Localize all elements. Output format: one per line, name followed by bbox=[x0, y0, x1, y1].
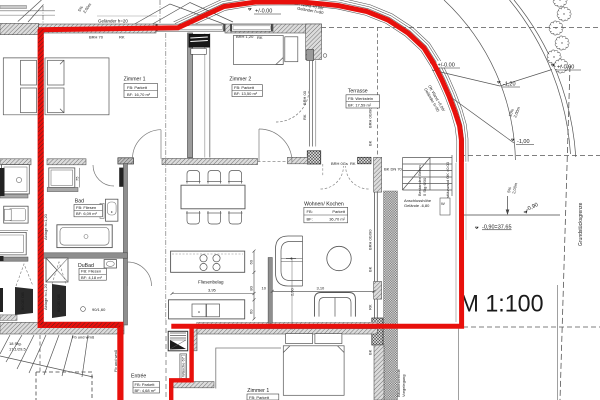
svg-text:Fb und wmß: Fb und wmß bbox=[113, 349, 118, 372]
svg-text:90 0G OB: 90 0G OB bbox=[20, 292, 25, 310]
svg-text:Entrée: Entrée bbox=[131, 374, 146, 380]
svg-text:W: W bbox=[441, 201, 445, 206]
svg-text:BF:: BF: bbox=[307, 217, 313, 222]
svg-text:60: 60 bbox=[249, 309, 254, 314]
svg-text:Fb und wmß: Fb und wmß bbox=[72, 335, 95, 340]
svg-text:RK: RK bbox=[368, 304, 373, 310]
svg-text:Wäsche 67: Wäsche 67 bbox=[181, 356, 186, 377]
svg-text:75: 75 bbox=[75, 176, 80, 181]
svg-text:60: 60 bbox=[249, 259, 254, 264]
svg-text:Gelände -6,80: Gelände -6,80 bbox=[404, 203, 430, 208]
svg-text:36,70 m²: 36,70 m² bbox=[329, 217, 345, 222]
svg-text:17,1/29,5: 17,1/29,5 bbox=[9, 347, 26, 352]
svg-text:+/-0.00: +/-0.00 bbox=[438, 63, 455, 69]
svg-text:FB: Parkett: FB: Parkett bbox=[249, 395, 270, 400]
svg-text:BK: BK bbox=[368, 349, 373, 355]
svg-text:RK: RK bbox=[119, 35, 125, 40]
svg-text:3,10: 3,10 bbox=[317, 285, 326, 290]
svg-text:Zimmer 1: Zimmer 1 bbox=[247, 388, 269, 394]
svg-text:-1,20: -1,20 bbox=[503, 82, 516, 88]
svg-text:90/1,60: 90/1,60 bbox=[92, 307, 106, 312]
svg-text:BF: 4,68 m²: BF: 4,68 m² bbox=[135, 388, 157, 393]
svg-text:FB: Parkett: FB: Parkett bbox=[135, 382, 156, 387]
svg-text:FB: Parkett: FB: Parkett bbox=[127, 85, 148, 90]
svg-text:BRH 0G/90: BRH 0G/90 bbox=[368, 229, 373, 250]
svg-text:+/-0.00: +/-0.00 bbox=[255, 9, 272, 15]
svg-text:BK DN 70: BK DN 70 bbox=[384, 167, 403, 172]
svg-text:BF: 17,59 m²: BF: 17,59 m² bbox=[348, 102, 372, 107]
svg-text:-1,00: -1,00 bbox=[517, 139, 530, 145]
svg-text:18 Stg.: 18 Stg. bbox=[9, 341, 22, 346]
svg-text:BRH 70: BRH 70 bbox=[89, 35, 104, 40]
svg-text:90 0G OB: 90 0G OB bbox=[56, 294, 61, 312]
svg-text:Vorgelegung: Vorgelegung bbox=[401, 375, 406, 397]
svg-text:5 Stg 6/30: 5 Stg 6/30 bbox=[422, 177, 427, 196]
svg-text:BRH 00: BRH 00 bbox=[302, 90, 307, 105]
svg-text:BRH 0Gs: BRH 0Gs bbox=[331, 161, 348, 166]
svg-text:FB: Parkett: FB: Parkett bbox=[234, 85, 255, 90]
svg-text:FB:: FB: bbox=[307, 209, 313, 214]
svg-text:10: 10 bbox=[262, 285, 267, 290]
svg-text:BF: 6,09 m²: BF: 6,09 m² bbox=[76, 211, 98, 216]
svg-text:BF: 16,70 m²: BF: 16,70 m² bbox=[127, 92, 151, 97]
svg-text:BRH 1,20: BRH 1,20 bbox=[236, 34, 254, 39]
svg-text:Geländer h=20: Geländer h=20 bbox=[98, 19, 128, 24]
svg-text:Parkett: Parkett bbox=[332, 209, 346, 214]
svg-text:BRH 0G/90: BRH 0G/90 bbox=[368, 107, 373, 128]
svg-text:BK: BK bbox=[368, 266, 373, 272]
svg-text:RK: RK bbox=[302, 114, 307, 120]
svg-text:+/-0.00: +/-0.00 bbox=[557, 65, 574, 71]
svg-text:M 1:100: M 1:100 bbox=[460, 291, 544, 318]
svg-text:Wohnen/ Kochen: Wohnen/ Kochen bbox=[304, 201, 344, 207]
svg-text:BF: 4,18 m²: BF: 4,18 m² bbox=[81, 275, 103, 280]
svg-text:Bad: Bad bbox=[75, 199, 84, 205]
svg-text:FB: Fliesen: FB: Fliesen bbox=[76, 205, 96, 210]
svg-text:BF: 13,50 m²: BF: 13,50 m² bbox=[234, 91, 258, 96]
svg-text:FB: Fliesen: FB: Fliesen bbox=[81, 269, 101, 274]
svg-text:Fliesenbelag: Fliesenbelag bbox=[198, 280, 224, 285]
svg-text:BK: BK bbox=[368, 140, 373, 146]
svg-text:Terrasse: Terrasse bbox=[348, 89, 368, 95]
svg-text:Grundstücksgrenze: Grundstücksgrenze bbox=[578, 202, 584, 246]
svg-text:-0,90=37.65: -0,90=37.65 bbox=[482, 225, 512, 231]
svg-text:Zimmer 1: Zimmer 1 bbox=[124, 77, 146, 83]
svg-text:RK: RK bbox=[350, 161, 356, 166]
svg-text:80: 80 bbox=[249, 285, 254, 290]
svg-text:Zimmer 2: Zimmer 2 bbox=[229, 77, 251, 83]
svg-text:3,95: 3,95 bbox=[208, 288, 217, 293]
svg-text:FB: Werkstein: FB: Werkstein bbox=[348, 96, 373, 101]
